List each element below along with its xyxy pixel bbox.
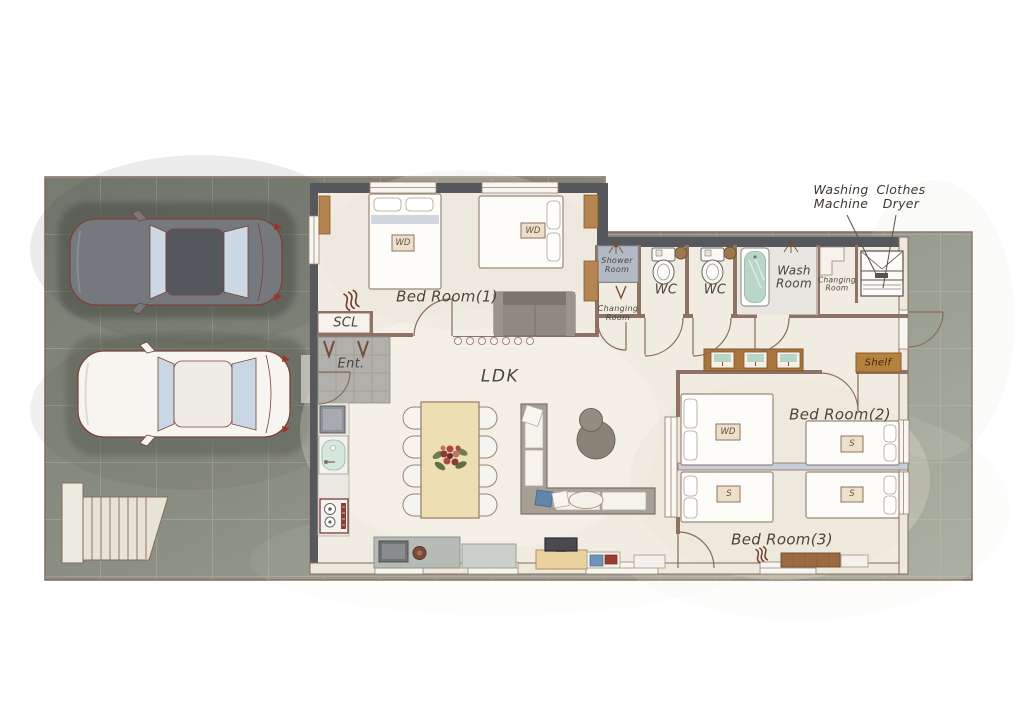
bed-tag-s-2: S	[726, 489, 731, 499]
shower-room-label: Shower Room	[595, 257, 639, 275]
bed-tag-s-3: S	[849, 489, 854, 499]
wood-bench	[781, 553, 840, 567]
bed-tag-wd-3: WD	[721, 427, 736, 437]
bedroom1-label: Bed Room(1)	[396, 289, 498, 306]
washer-dryer-stack	[861, 251, 903, 296]
bedroom2-label: Bed Room(2)	[789, 407, 891, 424]
bedroom3-label: Bed Room(3)	[731, 532, 833, 549]
bed-double-2	[479, 196, 563, 268]
washing-machine-annotation: Washing Machine	[812, 183, 870, 211]
wash-room-label: Wash Room	[770, 265, 818, 292]
shoe-closet-label: SCL	[333, 317, 358, 332]
car-white	[78, 342, 290, 446]
wc1-label: WC	[655, 284, 678, 299]
sliding-door-ldk-bedrooms	[665, 417, 677, 517]
changing-room-left-label: Changing Room	[595, 305, 641, 323]
bedroom1-sofa	[494, 292, 575, 336]
bed-tag-s-1: S	[849, 439, 854, 449]
entrance-label: Ent.	[338, 358, 365, 373]
changing-room-right-label: Changing Room	[815, 277, 859, 294]
ldk-label: LDK	[481, 367, 519, 386]
ottoman	[569, 492, 603, 509]
floorplan-image: Bed Room(1) Bed Room(2) Bed Room(3) LDK …	[0, 0, 1024, 724]
car-dark	[70, 210, 282, 314]
plant-shelf	[704, 349, 803, 371]
shelf-label: Shelf	[865, 357, 892, 368]
clothes-dryer-annotation: Clothes Dryer	[875, 183, 927, 211]
kitchen	[318, 403, 349, 536]
wc2-label: WC	[704, 284, 727, 299]
low-cabinet	[841, 555, 868, 567]
bed-tag-wd-2: WD	[526, 226, 541, 236]
bed-tag-wd-1: WD	[396, 238, 411, 248]
